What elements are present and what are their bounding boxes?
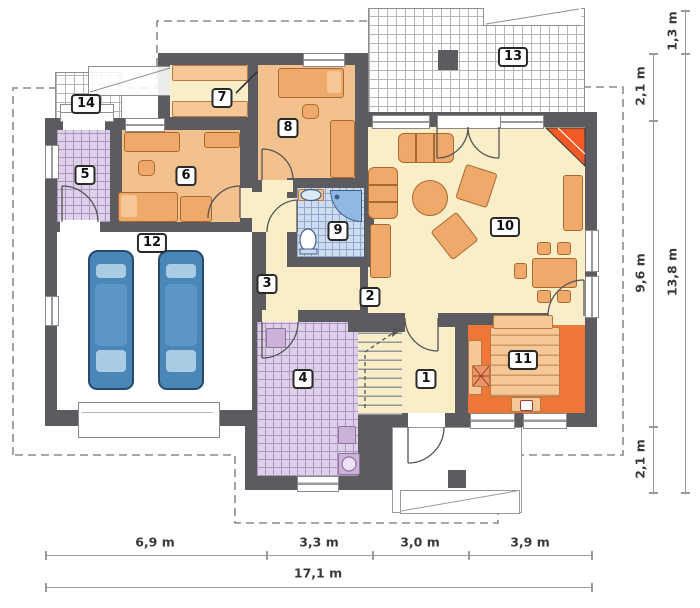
room-label-2: 2 xyxy=(359,287,380,307)
car-right xyxy=(158,250,204,390)
room-3-floor-corridor xyxy=(252,192,287,232)
pillow xyxy=(327,71,341,93)
room-label-6: 6 xyxy=(175,166,196,186)
kitchen-sink-unit xyxy=(511,397,541,412)
window-kitchen-right xyxy=(523,413,567,429)
wardrobe xyxy=(124,132,180,152)
dim-6-9: 6,9 m xyxy=(135,535,175,550)
dim-right-2-1-bottom: 2,1 m xyxy=(633,439,648,479)
floor-plan: 1 2 3 4 5 6 7 8 9 10 11 12 13 14 6,9 m 3… xyxy=(0,0,700,608)
door-opening-room6 xyxy=(240,188,252,218)
window-dining-upper xyxy=(585,230,599,272)
door-opening-room4 xyxy=(262,310,298,322)
window-kitchen-left xyxy=(470,413,515,429)
desk-chair xyxy=(302,104,319,119)
window-dining-lower xyxy=(585,276,599,318)
dim-right-9-6: 9,6 m xyxy=(633,253,648,293)
window-living-left xyxy=(372,115,430,129)
stool xyxy=(138,160,155,176)
kitchen-passthrough-counter xyxy=(493,315,553,329)
room-label-13: 13 xyxy=(498,47,528,67)
utility-cabinet xyxy=(266,328,286,348)
window-room4 xyxy=(297,476,339,492)
dining-chair xyxy=(514,263,527,279)
door-opening-boiler-garage xyxy=(60,220,100,232)
room-12-floor-garage xyxy=(57,232,252,410)
room-label-14: 14 xyxy=(71,94,101,114)
dining-chair xyxy=(557,242,571,255)
room-label-9: 9 xyxy=(327,221,348,241)
dim-right-2-1-top: 2,1 m xyxy=(633,66,648,106)
room-label-1: 1 xyxy=(415,369,436,389)
room-2-floor-hall xyxy=(266,265,360,310)
dimension-line-bottom-total xyxy=(45,587,592,588)
dim-right-13-8: 13,8 m xyxy=(665,248,680,296)
cabinet-left-wall xyxy=(370,224,391,278)
dining-chair xyxy=(557,290,571,303)
room-label-12: 12 xyxy=(137,233,167,253)
cabinet-right-wall xyxy=(563,175,583,231)
porch-column xyxy=(448,470,466,488)
door-opening-porch-boiler xyxy=(63,118,105,130)
dim-3-9: 3,9 m xyxy=(510,535,550,550)
room-3-floor-corridor xyxy=(266,232,287,265)
room-label-4: 4 xyxy=(292,369,313,389)
window-garage xyxy=(45,296,59,326)
window-boiler xyxy=(45,145,59,179)
dim-3-3: 3,3 m xyxy=(299,535,339,550)
room-label-3: 3 xyxy=(256,274,277,294)
bed-room8 xyxy=(278,68,344,98)
door-opening-entrance xyxy=(408,413,445,427)
desk-room6 xyxy=(180,196,212,222)
dining-chair xyxy=(537,290,551,303)
bed-room6 xyxy=(118,192,178,222)
dimension-line-right-outer xyxy=(685,10,686,493)
room-label-11: 11 xyxy=(508,350,538,370)
door-opening-room8 xyxy=(262,180,293,192)
room-label-10: 10 xyxy=(490,217,520,237)
coffee-table xyxy=(412,180,448,216)
dining-table xyxy=(532,258,577,288)
shelf xyxy=(204,132,240,148)
kitchen-door-opening xyxy=(548,313,585,325)
window-living-right xyxy=(500,115,544,129)
wardrobe-room8 xyxy=(330,120,355,178)
room-label-8: 8 xyxy=(277,118,298,138)
room-label-5: 5 xyxy=(74,165,95,185)
dim-3-0: 3,0 m xyxy=(400,535,440,550)
dimension-line-bottom-segments xyxy=(45,555,592,556)
room-label-7: 7 xyxy=(211,88,232,108)
pillow xyxy=(121,195,137,217)
garage-door xyxy=(78,402,220,438)
washing-machine xyxy=(338,453,360,475)
stairs xyxy=(358,325,402,415)
closet-shelf-top xyxy=(172,65,248,81)
stairs-newel-wall xyxy=(348,313,405,332)
window-room8 xyxy=(303,53,345,67)
wall-stub-hall xyxy=(438,313,458,327)
window-room6 xyxy=(125,118,165,132)
terrace-step xyxy=(483,8,581,26)
car-left xyxy=(88,250,134,390)
chimney xyxy=(438,50,458,70)
entrance-steps xyxy=(400,490,520,514)
sofa-left xyxy=(368,167,398,219)
french-door-living xyxy=(437,115,501,129)
door-opening-bathroom xyxy=(287,198,297,232)
washbasin-counter xyxy=(298,189,324,201)
dim-17-1: 17,1 m xyxy=(294,566,342,581)
utility-cabinet xyxy=(338,426,356,444)
closet-shelf-bottom xyxy=(172,101,248,117)
porch-canopy xyxy=(88,66,174,96)
dim-right-1-3: 1,3 m xyxy=(665,11,680,51)
sofa-top xyxy=(398,133,454,163)
stove xyxy=(472,365,490,387)
dining-chair xyxy=(537,242,551,255)
